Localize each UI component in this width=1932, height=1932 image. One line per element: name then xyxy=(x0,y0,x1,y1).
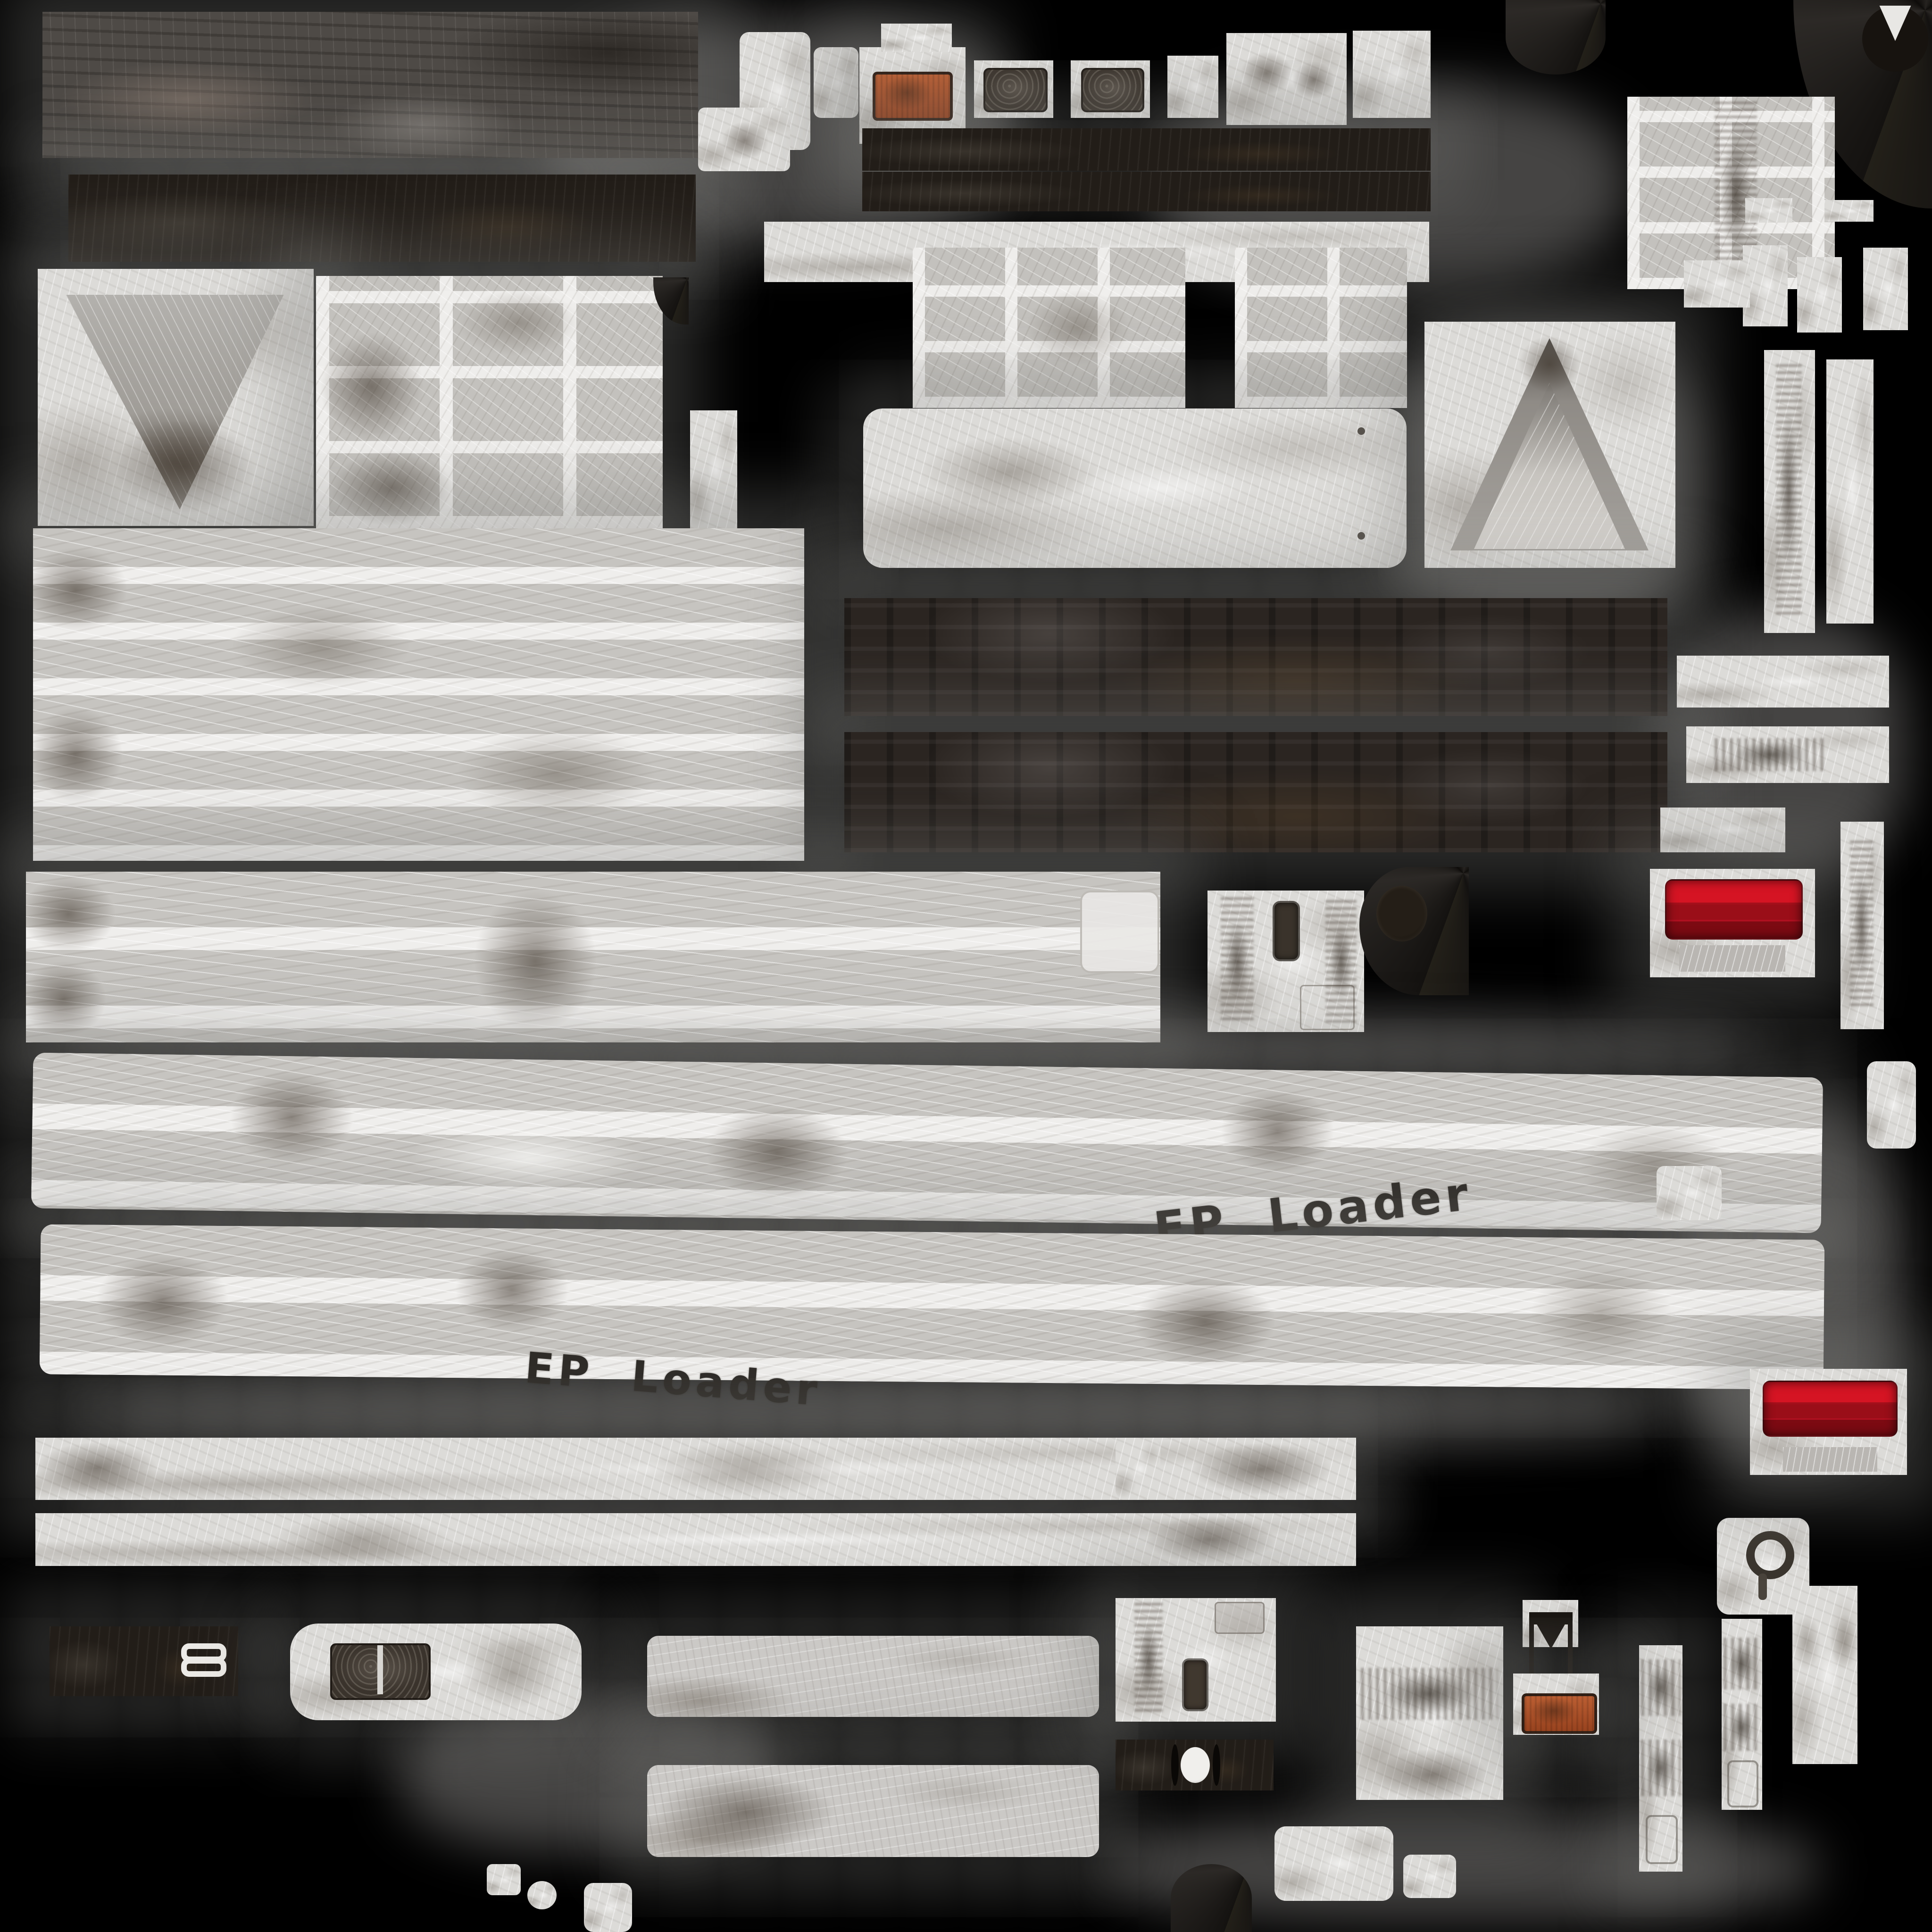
scuffed-gray-strip xyxy=(1783,1447,1877,1472)
tail-light-upper-backing xyxy=(1650,869,1815,977)
v-notch-icon xyxy=(1874,6,1916,51)
grime-streak xyxy=(1221,897,1254,1024)
floor-panel-2 xyxy=(647,1765,1099,1857)
right-strip-pair xyxy=(1686,726,1889,783)
dark-chassis-slab-1 xyxy=(844,598,1667,716)
inset-outline xyxy=(1727,1760,1758,1807)
axle-hub-circle xyxy=(1181,1747,1210,1783)
smudged-block xyxy=(1226,33,1347,125)
grime-blob xyxy=(1144,1516,1276,1563)
upright-strip-1 xyxy=(1639,1645,1682,1872)
grime-streak xyxy=(1715,738,1828,771)
grime-blob xyxy=(458,290,580,356)
grime-band xyxy=(1724,1638,1760,1690)
door-inset xyxy=(1184,1660,1207,1709)
misc-patch xyxy=(487,1864,521,1895)
small-patch xyxy=(1657,1166,1722,1220)
axle-ellipse-left xyxy=(1171,1744,1179,1786)
grime-blob xyxy=(113,420,255,514)
small-bar xyxy=(1745,198,1792,223)
misc-patch xyxy=(1274,1826,1393,1901)
scratched-square-patch xyxy=(1167,56,1218,118)
rounded-hood-panel xyxy=(863,408,1407,568)
rounded-step-plate xyxy=(290,1624,582,1720)
small-patch xyxy=(1353,31,1431,118)
striped-deck-large xyxy=(33,528,804,861)
grime-blob xyxy=(458,726,656,821)
top-right-inset-outline xyxy=(1215,1602,1265,1634)
misc-patch xyxy=(584,1883,632,1932)
dark-chassis-strip-2 xyxy=(862,172,1431,211)
grime-band xyxy=(1641,1659,1681,1716)
grime-blob xyxy=(330,450,453,526)
fender-band-upper xyxy=(31,1053,1823,1233)
misc-patch xyxy=(527,1881,557,1909)
grime-blob xyxy=(706,1104,849,1200)
grime-blob xyxy=(649,1441,847,1496)
ring-v-notch xyxy=(1862,6,1928,72)
grime-blob xyxy=(96,1253,229,1349)
tail-light-lower-lens xyxy=(1763,1381,1898,1437)
weathered-slate-panel-top-left xyxy=(42,12,698,158)
grime-blob xyxy=(920,437,1099,508)
grime-band xyxy=(1641,1740,1681,1796)
reflector-orange-bottom-backing xyxy=(1513,1674,1599,1735)
dark-chassis-slab-2 xyxy=(844,732,1667,852)
grime-blob xyxy=(1220,1088,1334,1174)
grime-blob xyxy=(21,876,116,952)
grime-blob xyxy=(474,891,597,1032)
tail-light-lower-backing xyxy=(1750,1369,1907,1475)
grime-streak xyxy=(1776,364,1802,619)
misc-dark-wedge xyxy=(1171,1864,1252,1932)
texture-atlas-canvas: EP Loader EP Loader xyxy=(0,0,1932,1932)
grime-blob xyxy=(1026,290,1130,366)
small-patch-marked xyxy=(698,108,790,171)
grime-blob xyxy=(320,333,424,441)
reflector-top-flap xyxy=(881,24,952,52)
small-patch xyxy=(1867,1061,1916,1149)
axle-ellipse-right xyxy=(1213,1744,1220,1786)
grime-blob xyxy=(1241,52,1292,94)
grime-blob xyxy=(1191,1443,1332,1495)
hub-wedge xyxy=(1359,867,1469,995)
funnel-v-patch xyxy=(38,269,314,526)
grime-blob xyxy=(1530,1266,1673,1361)
dark-chassis-strip-1 xyxy=(862,128,1431,171)
scuff-highlight xyxy=(409,1124,646,1193)
sill-strip-2 xyxy=(35,1513,1356,1566)
hub-ring-stem xyxy=(1758,1574,1767,1600)
grime-blob xyxy=(35,1442,158,1494)
grime-blob xyxy=(1830,1614,1858,1671)
grime-band xyxy=(1724,1704,1760,1751)
small-strip xyxy=(1863,248,1908,330)
inset-outline xyxy=(1646,1815,1678,1864)
grime-blob xyxy=(24,547,127,632)
fender-band-lower xyxy=(40,1224,1825,1390)
grime-blob xyxy=(230,1069,354,1166)
door-inset-panel xyxy=(1207,891,1364,1032)
bolt-dot xyxy=(1357,532,1365,540)
tail-light-upper-lens xyxy=(1665,879,1803,940)
fan-small-top xyxy=(1506,0,1606,75)
grime-blob xyxy=(21,961,106,1037)
gable-tent-patch xyxy=(1424,322,1675,568)
cell-divider xyxy=(377,1645,383,1694)
grime-blob xyxy=(722,122,769,159)
upright-strip-2 xyxy=(1722,1619,1762,1810)
stencil-bar-bottom xyxy=(181,1658,226,1677)
grime-blob xyxy=(460,1638,564,1708)
long-panel-band xyxy=(26,872,1160,1042)
cab-back-panel xyxy=(1116,1598,1276,1722)
door-inset xyxy=(1274,903,1298,959)
grime-inset xyxy=(1081,68,1144,112)
grime-band xyxy=(1361,1668,1498,1720)
grime-blob xyxy=(1292,61,1335,99)
tall-strip-right-a xyxy=(1764,350,1815,633)
hub-ring-patch xyxy=(1717,1518,1809,1615)
bolt-dot xyxy=(1357,427,1365,435)
small-gray-piece xyxy=(1684,260,1750,308)
small-strip xyxy=(1797,257,1842,333)
grime-inset xyxy=(983,68,1048,112)
grid-panel-large xyxy=(316,276,663,528)
mid-grid-panel-1 xyxy=(913,248,1185,408)
grime-blob xyxy=(1792,1614,1821,1671)
narrow-strip xyxy=(690,410,737,528)
band-inset-plate xyxy=(1080,891,1159,973)
grime-streak xyxy=(1134,1603,1163,1716)
mid-grid-panel-2 xyxy=(1235,248,1407,408)
reflector-orange-bottom xyxy=(1522,1693,1597,1734)
vertical-bar-right-edge xyxy=(1840,822,1884,1029)
grime-streak xyxy=(1325,900,1357,1023)
strip-above-tail-light xyxy=(1660,808,1785,852)
hub-circle xyxy=(1376,886,1427,941)
grime-blob xyxy=(231,604,410,689)
grime-streak xyxy=(1850,841,1874,1010)
right-strip-pair xyxy=(1677,656,1889,708)
small-patch xyxy=(814,47,858,118)
floor-panel-1 xyxy=(647,1636,1099,1717)
mudflap-inset-patch-b xyxy=(1071,60,1150,118)
stencil-mark-icon xyxy=(178,1643,230,1684)
grime-blob xyxy=(1519,336,1580,392)
small-bar xyxy=(1824,200,1874,222)
mudflap-inset-patch-a xyxy=(974,60,1053,118)
grime-blob xyxy=(657,1774,836,1850)
misc-patch xyxy=(1403,1855,1456,1898)
reflector-orange-top xyxy=(873,72,953,121)
hub-ring-icon xyxy=(1746,1531,1794,1579)
black-steel-strip-top-left xyxy=(68,175,696,262)
grime-blob xyxy=(28,708,123,802)
two-cell-inset xyxy=(330,1643,431,1700)
small-rounded-patch xyxy=(1116,1440,1160,1499)
grime-blob xyxy=(455,1247,569,1332)
stencil-plate-black xyxy=(50,1626,238,1696)
axle-bar xyxy=(1116,1740,1274,1790)
grime-blob xyxy=(1134,1276,1276,1367)
scuffed-gray-strip xyxy=(1679,945,1785,972)
side-post-panel xyxy=(1356,1626,1503,1800)
grime-blob xyxy=(1375,1749,1488,1801)
tall-strip-right-b xyxy=(1826,359,1874,624)
grime-blob xyxy=(271,1517,450,1562)
